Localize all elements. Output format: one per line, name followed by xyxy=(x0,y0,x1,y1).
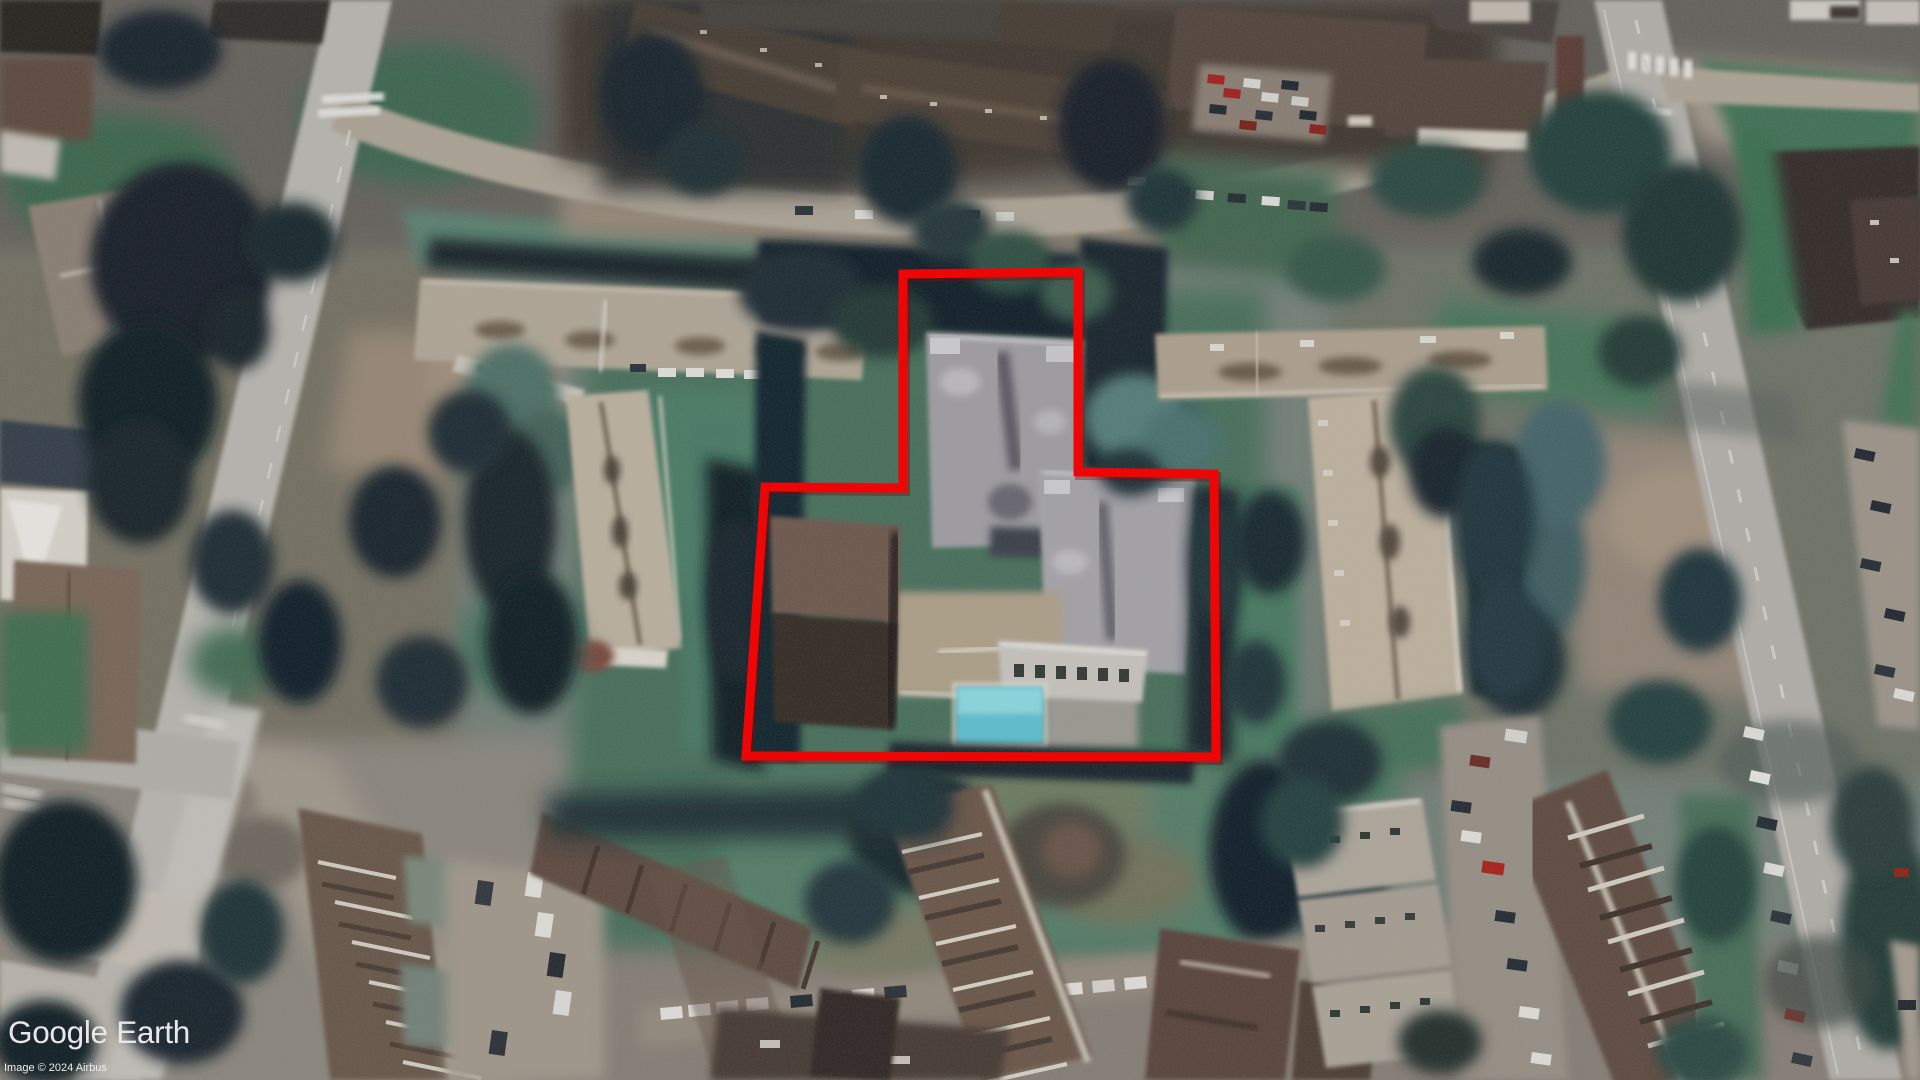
svg-text:Google Earth: Google Earth xyxy=(8,1014,190,1050)
svg-text:Image © 2024 Airbus: Image © 2024 Airbus xyxy=(4,1062,107,1074)
